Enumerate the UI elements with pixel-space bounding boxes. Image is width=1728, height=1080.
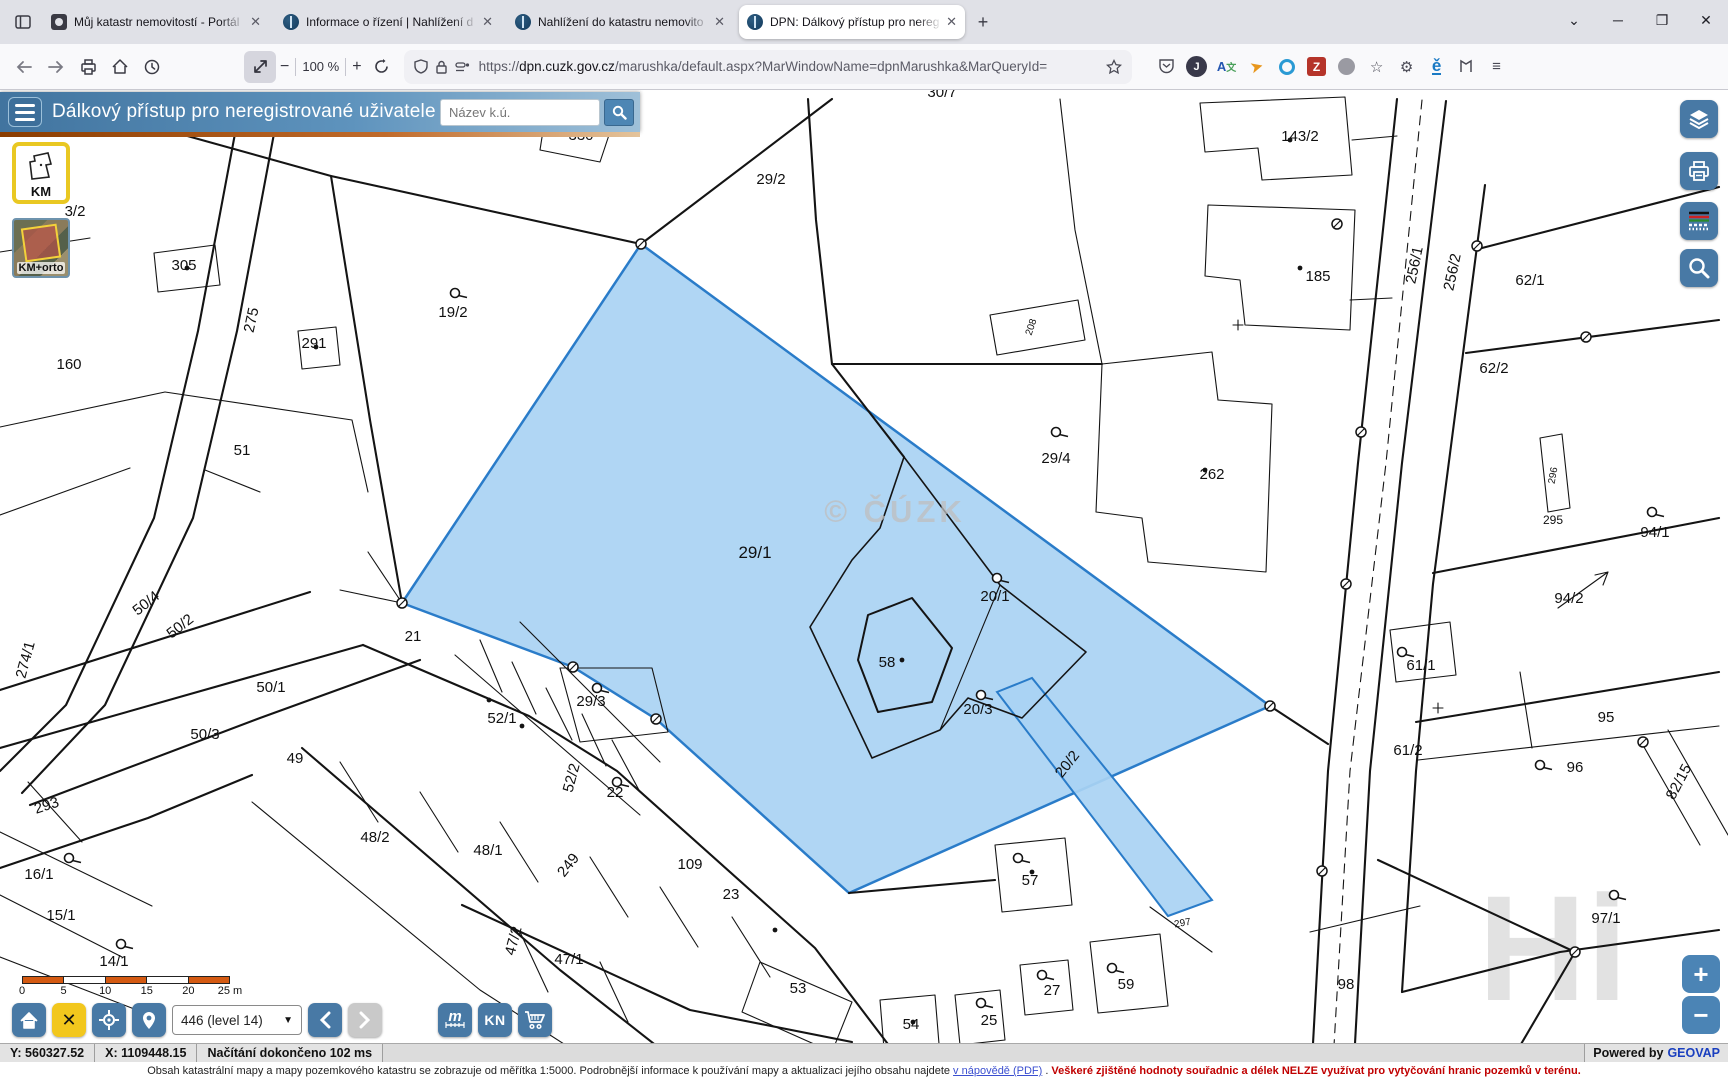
forward-button[interactable] — [40, 51, 72, 83]
parcel-label: 27 — [1044, 982, 1061, 999]
tab-close-icon[interactable]: ✕ — [482, 14, 493, 30]
scale-tick: 10 — [99, 985, 111, 997]
layer-kmorto-label: KM+orto — [17, 262, 66, 274]
parcel-label: 14/1 — [99, 953, 128, 970]
print-icon[interactable] — [72, 51, 104, 83]
tab-close-icon[interactable]: ✕ — [250, 14, 261, 30]
location-arrow-icon[interactable]: ➤ — [1242, 52, 1272, 82]
parcel-label: 262 — [1199, 466, 1224, 483]
parcel-label: 15/1 — [46, 907, 75, 924]
layers-button[interactable] — [1680, 100, 1718, 138]
parcel-label: 23 — [723, 886, 740, 903]
previous-view-button[interactable] — [308, 1003, 342, 1037]
parcel-label: 53 — [790, 980, 807, 997]
parcel-label: 97/1 — [1591, 910, 1620, 927]
close-window-button[interactable]: ✕ — [1684, 0, 1728, 40]
scale-tick: 25 m — [218, 985, 242, 997]
tab-favicon — [747, 14, 763, 30]
parcel-label: 50/3 — [190, 726, 219, 743]
parcel-label: 208 — [1024, 317, 1040, 337]
status-bar: Y: 560327.52 X: 1109448.15 Načítání doko… — [0, 1043, 1728, 1062]
coordinate-y: Y: 560327.52 — [0, 1044, 95, 1062]
bookmarks-star-icon[interactable]: ☆ — [1362, 52, 1392, 82]
next-view-button[interactable] — [348, 1003, 382, 1037]
tab-title: DPN: Dálkový přístup pro nereg — [770, 15, 942, 29]
scale-tick: 0 — [19, 985, 25, 997]
parcel-sketch-icon — [24, 150, 58, 184]
footer-warning: Veškeré zjištěné hodnoty souřadnic a dél… — [1051, 1065, 1580, 1077]
parcel-label: 61/2 — [1393, 742, 1422, 759]
pin-icon — [142, 1011, 156, 1030]
account-avatar-icon[interactable]: J — [1182, 52, 1212, 82]
tab-favicon — [51, 14, 67, 30]
scale-select-value: 446 (level 14) — [181, 1013, 263, 1028]
parcel-label: 62/2 — [1479, 360, 1508, 377]
parcel-label: 21 — [405, 628, 422, 645]
parcel-label: 185 — [1305, 268, 1330, 285]
map-search-button[interactable] — [1680, 249, 1718, 287]
tab-favicon — [515, 14, 531, 30]
tab-close-icon[interactable]: ✕ — [946, 14, 957, 30]
parcel-label: 160 — [56, 356, 81, 373]
parcel-label: 29/4 — [1041, 450, 1070, 467]
parcel-label: 94/1 — [1640, 524, 1669, 541]
help-pdf-link[interactable]: v nápovědě (PDF) — [953, 1065, 1042, 1077]
measure-button[interactable]: m — [438, 1003, 472, 1037]
settings-gear-icon[interactable]: ⚙ — [1392, 52, 1422, 82]
history-clock-icon[interactable] — [136, 51, 168, 83]
parcel-label: 47/2 — [502, 925, 526, 958]
cadastral-map-svg: Hi — [0, 90, 1728, 1043]
parcel-label: 256/1 — [1402, 245, 1426, 285]
parcel-label: 16/1 — [24, 866, 53, 883]
parcel-label: 94/2 — [1554, 590, 1583, 607]
parcel-label: 29/2 — [756, 171, 785, 188]
tab-title: Nahlížení do katastru nemovito — [538, 15, 710, 29]
parcel-label: 57 — [1022, 872, 1039, 889]
zoom-in-button[interactable]: + — [352, 58, 361, 76]
ruler-icon — [445, 1022, 465, 1029]
scale-tick: 20 — [182, 985, 194, 997]
parcel-label: 51 — [234, 442, 251, 459]
ring-extension-icon[interactable] — [1272, 52, 1302, 82]
footer-disclaimer: Obsah katastrální mapy a mapy pozemkovéh… — [0, 1062, 1728, 1080]
chevron-right-icon — [359, 1011, 371, 1029]
menu-hamburger-icon[interactable]: ≡ — [1482, 52, 1512, 82]
home-icon — [20, 1012, 38, 1029]
coordinate-x: X: 1109448.15 — [95, 1044, 197, 1062]
tab-dpn-active[interactable]: DPN: Dálkový přístup pro nereg ✕ — [739, 5, 965, 39]
menu-hamburger-button[interactable] — [8, 97, 42, 127]
cart-button[interactable] — [518, 1003, 552, 1037]
search-button[interactable] — [604, 99, 634, 126]
parcel-label: 25 — [981, 1012, 998, 1029]
locate-crosshair-button[interactable] — [92, 1003, 126, 1037]
parcel-label: 109 — [677, 856, 702, 873]
measure-label: m — [448, 1012, 461, 1022]
parcel-label: 59 — [1118, 976, 1135, 993]
tab-close-icon[interactable]: ✕ — [714, 14, 725, 30]
crosshair-icon — [99, 1010, 119, 1030]
tab-nahlizeni[interactable]: Nahlížení do katastru nemovito ✕ — [507, 5, 733, 39]
parcel-label: 291 — [301, 335, 326, 352]
bookmark-star-icon[interactable] — [1106, 59, 1122, 75]
restore-button[interactable]: ❐ — [1640, 0, 1684, 40]
parcel-label: 62/1 — [1515, 272, 1544, 289]
tab-title: Informace o řízení | Nahlížení d — [306, 15, 478, 29]
cart-icon — [524, 1010, 546, 1030]
zoom-level[interactable]: 100 % — [302, 59, 339, 74]
back-button[interactable] — [8, 51, 40, 83]
parcel-label: 20/1 — [980, 588, 1009, 605]
new-tab-button[interactable]: + — [968, 7, 998, 37]
parcel-label: 82/15 — [1663, 761, 1696, 802]
chevron-left-icon — [319, 1011, 331, 1029]
scale-tick: 5 — [61, 985, 67, 997]
shield-icon[interactable] — [414, 59, 428, 74]
minimize-button[interactable]: ─ — [1596, 0, 1640, 40]
parcel-label: 50/1 — [256, 679, 285, 696]
parcel-label: 143/2 — [1281, 128, 1319, 145]
library-icon[interactable] — [1452, 52, 1482, 82]
pocket-icon[interactable] — [1152, 52, 1182, 82]
tab-muj-katastr[interactable]: Můj katastr nemovitostí - Portál ✕ — [43, 5, 269, 39]
parcel-label: 54 — [903, 1016, 920, 1033]
app-title: Dálkový přístup pro neregistrované uživa… — [52, 101, 440, 123]
window-controls: ⌄ ─ ❐ ✕ — [1552, 0, 1728, 40]
magnifier-icon — [1687, 256, 1711, 280]
translate-icon[interactable]: A文 — [1212, 52, 1242, 82]
hi-watermark: Hi — [1447, 808, 1662, 1032]
region-zoom-tool-icon[interactable] — [244, 51, 276, 83]
layer-button-km-orto[interactable]: KM+orto — [12, 218, 70, 278]
home-button[interactable] — [104, 51, 136, 83]
parcel-label: 249 — [554, 850, 583, 880]
parcel-label: 98 — [1338, 976, 1355, 993]
browser-nav-bar: − 100 % + https://dpn.cuzk.gov.cz/marush… — [0, 44, 1728, 90]
url-bar[interactable]: https://dpn.cuzk.gov.cz/marushka/default… — [404, 50, 1132, 84]
tab-title: Můj katastr nemovitostí - Portál — [74, 15, 246, 29]
chevron-down-icon: ▼ — [283, 1015, 293, 1026]
map-bottom-toolbar: ✕ 446 (level 14) ▼ m KN — [12, 1003, 552, 1037]
zotero-icon[interactable]: Z — [1302, 52, 1332, 82]
app-header: Dálkový přístup pro neregistrované uživa… — [0, 92, 640, 132]
home-extent-button[interactable] — [12, 1003, 46, 1037]
parcel-label: 30/7 — [927, 90, 956, 101]
zoom-out-button[interactable]: − — [280, 58, 289, 76]
kn-info-button[interactable]: KN — [478, 1003, 512, 1037]
cuzk-watermark: © ČÚZK — [824, 493, 966, 529]
svg-text:Hi: Hi — [1478, 864, 1628, 1032]
layers-icon — [1687, 107, 1711, 131]
parcel-label: 297 — [1173, 917, 1192, 931]
parcel-label: 48/1 — [473, 842, 502, 859]
page-zoom-controls: − 100 % + — [280, 58, 362, 76]
scale-select[interactable]: 446 (level 14) ▼ — [172, 1005, 302, 1035]
parcel-label: 305 — [171, 257, 196, 274]
url-text[interactable]: https://dpn.cuzk.gov.cz/marushka/default… — [479, 59, 1106, 74]
parcel-label: 48/2 — [360, 829, 389, 846]
legend-icon — [1687, 209, 1711, 233]
parcel-label: 274/1 — [13, 640, 39, 681]
tab-favicon — [283, 14, 299, 30]
permissions-icon[interactable] — [455, 61, 471, 73]
parcel-label: 295 — [1543, 513, 1563, 527]
zoom-in-map-button[interactable]: + — [1682, 955, 1720, 993]
zoom-out-map-button[interactable]: − — [1682, 996, 1720, 1034]
parcel-label: 52/2 — [560, 762, 584, 795]
parcel-label: 52/1 — [487, 710, 516, 727]
parcel-label: 22 — [607, 784, 624, 801]
footer-dot: . — [1045, 1065, 1048, 1077]
footer-text: Obsah katastrální mapy a mapy pozemkovéh… — [147, 1065, 950, 1077]
parcel-label: 96 — [1567, 759, 1584, 776]
geovap-link[interactable]: GEOVAP — [1667, 1046, 1720, 1060]
lock-icon[interactable] — [436, 60, 447, 74]
cancel-selection-button[interactable]: ✕ — [52, 1003, 86, 1037]
printer-icon — [1687, 160, 1711, 182]
parcel-label: 49 — [287, 750, 304, 767]
gray-extension-icon[interactable] — [1332, 52, 1362, 82]
pin-location-button[interactable] — [132, 1003, 166, 1037]
map-viewport[interactable]: Hi — [0, 90, 1728, 1043]
legend-button[interactable] — [1680, 202, 1718, 240]
print-map-button[interactable] — [1680, 152, 1718, 190]
parcel-label: 61/1 — [1406, 657, 1435, 674]
browser-tab-bar: Můj katastr nemovitostí - Portál ✕ Infor… — [0, 0, 1728, 44]
parcel-label: 58 — [879, 654, 896, 671]
list-tabs-chevron-icon[interactable]: ⌄ — [1552, 0, 1596, 40]
parcel-label: 19/2 — [438, 304, 467, 321]
parcel-label: 296 — [1547, 466, 1561, 485]
reload-button[interactable] — [366, 51, 398, 83]
powered-by: Powered by GEOVAP — [1584, 1044, 1728, 1062]
highlighted-parcel-29-1[interactable] — [402, 244, 1270, 893]
parcel-label: 29/3 — [576, 693, 605, 710]
parcel-label: 275 — [241, 306, 263, 334]
load-status: Načítání dokončeno 102 ms — [197, 1044, 383, 1062]
scale-tick: 15 — [141, 985, 153, 997]
parcel-label: 47/1 — [554, 951, 583, 968]
scale-bar: 0510152025 m — [22, 976, 230, 998]
extension-icons: J A文 ➤ Z ☆ ⚙ ě ≡ — [1152, 52, 1512, 82]
firefox-view-icon[interactable] — [6, 6, 40, 38]
layer-km-label: KM — [31, 184, 51, 199]
tab-informace-o-rizeni[interactable]: Informace o řízení | Nahlížení d ✕ — [275, 5, 501, 39]
ortho-parcel-overlay — [21, 224, 61, 263]
parcel-label: 256/2 — [1440, 252, 1464, 292]
parcel-label: 29/1 — [738, 543, 771, 562]
e-dictionary-icon[interactable]: ě — [1422, 52, 1452, 82]
parcel-label: 20/3 — [963, 701, 992, 718]
layer-button-km[interactable]: KM — [12, 142, 70, 204]
parcel-label: 95 — [1598, 709, 1615, 726]
zoom-buttons: + − — [1682, 955, 1720, 1034]
search-input[interactable] — [440, 99, 600, 126]
